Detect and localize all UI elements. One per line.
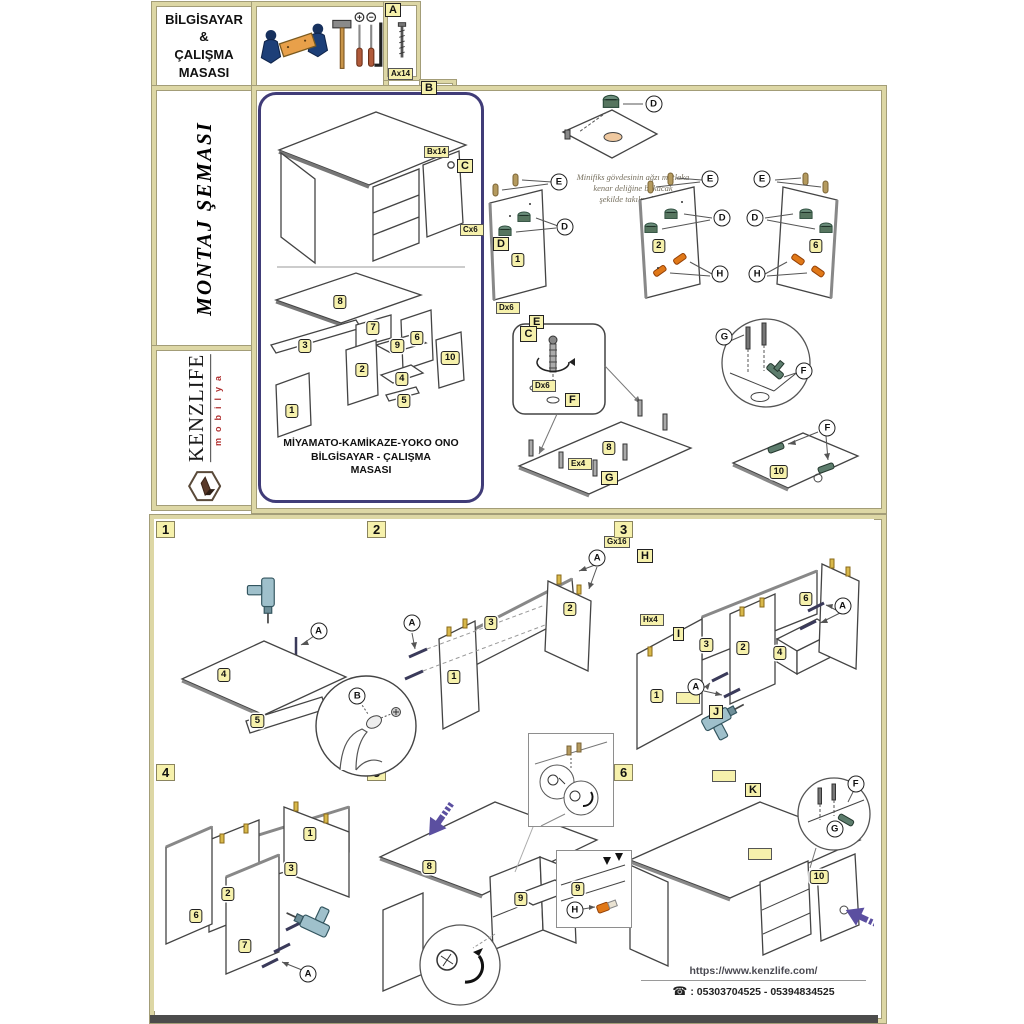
callout-badge-1: 1 (650, 689, 663, 703)
callout-badge-g: G (826, 821, 843, 838)
callout-badge-h: H (749, 266, 766, 283)
callout-badge-6: 6 (809, 239, 822, 253)
detail-minifix-orientation: D (555, 92, 667, 170)
hardware-letter: I (673, 627, 684, 641)
tools-illustration (256, 6, 384, 86)
callout-badge-2: 2 (563, 602, 576, 616)
hardware-box-a: A Ax14 (384, 2, 420, 80)
dowel-cam-inset-box (528, 733, 614, 827)
callout-badge-3: 3 (700, 638, 713, 652)
hardware-qty: Ax14 (388, 68, 413, 80)
callout-badge-4: 4 (773, 646, 786, 660)
callout-badge-8: 8 (334, 295, 347, 309)
callout-badge-9: 9 (391, 339, 404, 353)
callout-badge-1: 1 (285, 404, 298, 418)
callout-badge-6: 6 (190, 909, 203, 923)
callout-badge-f: F (795, 363, 812, 380)
callout-badge-d: D (645, 96, 662, 113)
footer-contact: https://www.kenzlife.com/ ☎: 05303704525… (641, 965, 866, 998)
hardware-row: A Ax14 B Bx14 C (384, 2, 878, 82)
top-section: BİLGİSAYAR & ÇALIŞMA MASASI MONTAJ ŞEMAS… (150, 2, 878, 505)
callout-badge-2: 2 (736, 641, 749, 655)
callout-badge-a: A (310, 622, 327, 639)
hardware-qty (712, 770, 736, 782)
callout-badge-e: E (702, 171, 719, 188)
montaj-semasi-label: MONTAJ ŞEMASI (192, 121, 217, 316)
assembly-manual-page: BİLGİSAYAR & ÇALIŞMA MASASI MONTAJ ŞEMAS… (0, 0, 1024, 1024)
callout-badge-2: 2 (356, 363, 369, 377)
hardware-qty (748, 848, 772, 860)
callout-badge-a: A (589, 549, 606, 566)
callout-badge-3: 3 (484, 616, 497, 630)
callout-badge-d: D (746, 210, 763, 227)
phone-icon: ☎ (672, 984, 687, 998)
callout-badge-3: 3 (284, 862, 297, 876)
callout-badge-a: A (300, 965, 317, 982)
steps-section: 1 A45 2 (150, 515, 886, 1023)
hardware-letter: A (385, 3, 401, 17)
callout-badge-1: 1 (447, 670, 460, 684)
hardware-letter: K (745, 783, 761, 797)
brand-name: KENZLIFE (185, 353, 212, 461)
product-title: BİLGİSAYAR & ÇALIŞMA MASASI (165, 11, 243, 81)
callout-badge-7: 7 (367, 321, 380, 335)
brand-subtitle: mobilya (214, 353, 224, 461)
hardware-letter: J (709, 705, 723, 719)
hardware-letter: B (421, 81, 437, 95)
callout-badge-d: D (714, 210, 731, 227)
website-url: https://www.kenzlife.com/ (641, 965, 866, 977)
callout-badge-a: A (403, 615, 420, 632)
callout-badge-8: 8 (423, 860, 436, 874)
callout-badge-7: 7 (238, 939, 251, 953)
kenzlife-hexagon-icon (187, 469, 221, 503)
montaj-semasi-box: MONTAJ ŞEMASI (152, 86, 256, 350)
callout-badge-d: D (556, 218, 573, 235)
callout-badge-5: 5 (397, 394, 410, 408)
step-number: 4 (156, 764, 175, 781)
product-name: MİYAMATO-KAMİKAZE-YOKO ONO BİLGİSAYAR - … (261, 437, 481, 478)
step-number: 1 (156, 521, 175, 538)
hinge-mount-detail: GF (712, 315, 816, 417)
hardware-letter: D (493, 237, 509, 251)
brand-logo-box: KENZLIFE mobilya (152, 346, 256, 510)
callout-badge-f: F (847, 776, 864, 793)
callout-badge-10: 10 (441, 351, 460, 365)
callout-badge-g: G (716, 329, 733, 346)
callout-badge-e: E (550, 174, 567, 191)
callout-badge-1: 1 (303, 827, 316, 841)
callout-badge-2: 2 (221, 887, 234, 901)
callout-badge-f: F (819, 419, 836, 436)
hardware-letter: F (565, 393, 580, 407)
panel2-hardware-fig: ED2H (610, 168, 732, 308)
step-4-drawing (154, 762, 365, 1011)
step-number: 3 (614, 521, 633, 538)
callout-badge-9: 9 (514, 892, 527, 906)
door-panel-hinges-fig: F10 (718, 418, 870, 500)
callout-badge-a: A (834, 598, 851, 615)
tools-illustration-box (252, 2, 388, 90)
callout-badge-6: 6 (799, 592, 812, 606)
callout-badge-c: C (520, 326, 538, 342)
callout-badge-5: 5 (251, 714, 264, 728)
step-6-cell: 6 (612, 762, 874, 1011)
hardware-qty: Bx14 (424, 146, 449, 158)
step-number: 6 (614, 764, 633, 781)
callout-badge-h: H (711, 266, 728, 283)
hardware-qty: Dx6 (532, 380, 556, 392)
hardware-qty: Cx6 (460, 224, 484, 236)
phone-numbers: ☎: 05303704525 - 05394834525 (641, 984, 866, 998)
footer-divider (641, 980, 866, 981)
bottom-edge-bar (150, 1015, 878, 1023)
hardware-qty: Dx6 (496, 302, 520, 314)
callout-badge-8: 8 (602, 441, 615, 455)
cap-press-detail: B (312, 672, 420, 780)
callout-badge-10: 10 (810, 870, 829, 884)
hardware-letter: C (457, 159, 473, 173)
step-4-cell: 4 13267A (154, 762, 366, 1011)
hardware-qty: Hx4 (640, 614, 664, 626)
callout-badge-1: 1 (511, 253, 524, 267)
shelf-cap-inset-box: 9H (556, 850, 632, 928)
hardware-letter: G (601, 471, 618, 485)
panel6-hardware-fig: ED6H (745, 168, 867, 308)
callout-badge-6: 6 (411, 331, 424, 345)
callout-badge-b: B (349, 687, 366, 704)
step-number: 2 (367, 521, 386, 538)
overview-panel: MİYAMATO-KAMİKAZE-YOKO ONO BİLGİSAYAR - … (258, 92, 484, 503)
callout-badge-10: 10 (770, 465, 789, 479)
callout-badge-4: 4 (217, 668, 230, 682)
main-diagram-area: MİYAMATO-KAMİKAZE-YOKO ONO BİLGİSAYAR - … (252, 86, 886, 513)
product-title-box: BİLGİSAYAR & ÇALIŞMA MASASI (152, 2, 256, 90)
callout-badge-4: 4 (395, 372, 408, 386)
hardware-qty: Ex4 (568, 458, 592, 470)
hardware-letter: H (637, 549, 653, 563)
callout-badge-a: A (687, 678, 704, 695)
confirmat-screw-icon (391, 18, 413, 64)
callout-badge-h: H (566, 902, 583, 919)
callout-badge-9: 9 (571, 882, 584, 896)
callout-badge-e: E (754, 171, 771, 188)
callout-badge-3: 3 (298, 339, 311, 353)
callout-badge-2: 2 (652, 239, 665, 253)
